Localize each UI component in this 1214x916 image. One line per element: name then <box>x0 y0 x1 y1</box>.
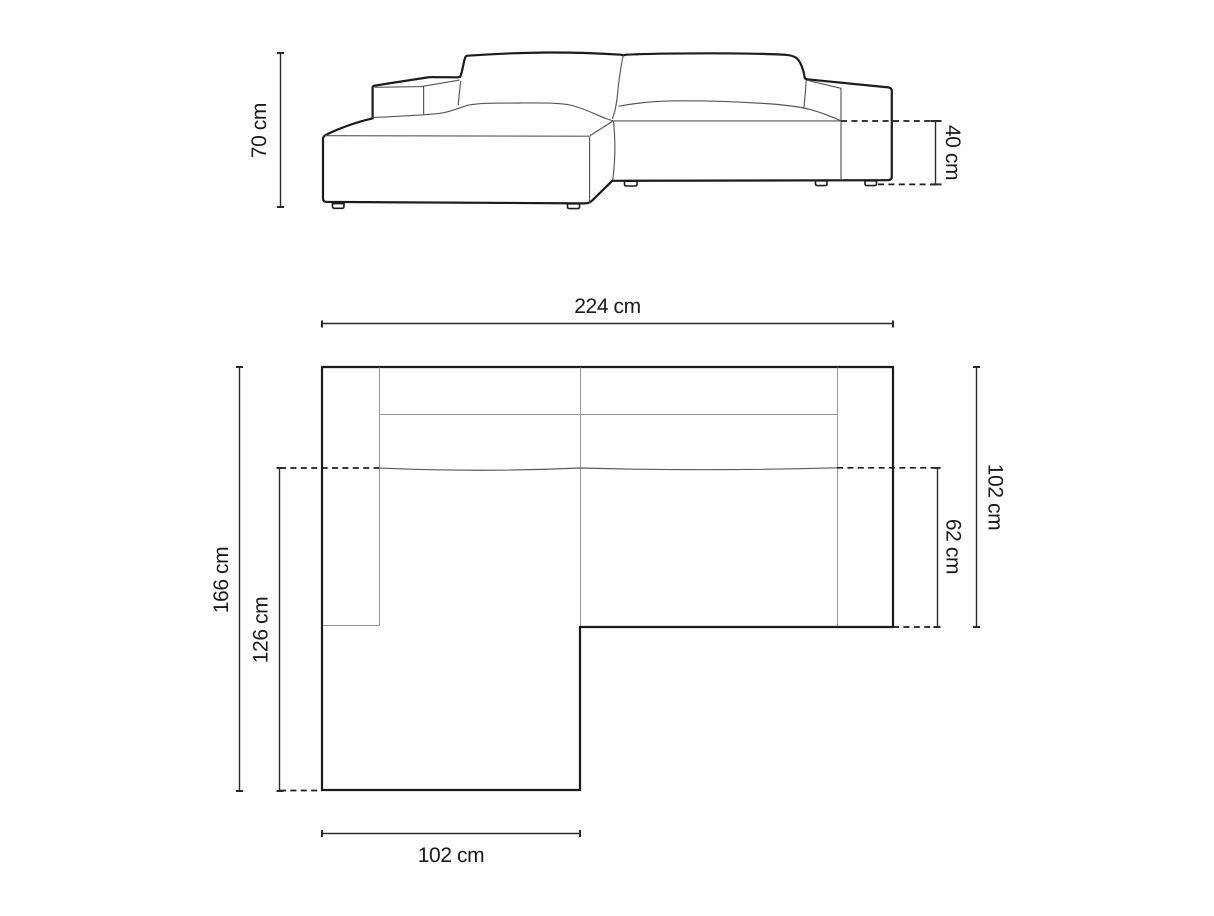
svg-text:126 cm: 126 cm <box>250 597 273 663</box>
svg-text:224 cm: 224 cm <box>574 295 640 318</box>
svg-text:70 cm: 70 cm <box>248 103 271 158</box>
svg-text:40 cm: 40 cm <box>941 125 964 180</box>
svg-text:166 cm: 166 cm <box>210 547 233 613</box>
svg-text:62 cm: 62 cm <box>942 519 965 574</box>
svg-text:102 cm: 102 cm <box>418 844 484 867</box>
svg-text:102 cm: 102 cm <box>984 464 1007 530</box>
